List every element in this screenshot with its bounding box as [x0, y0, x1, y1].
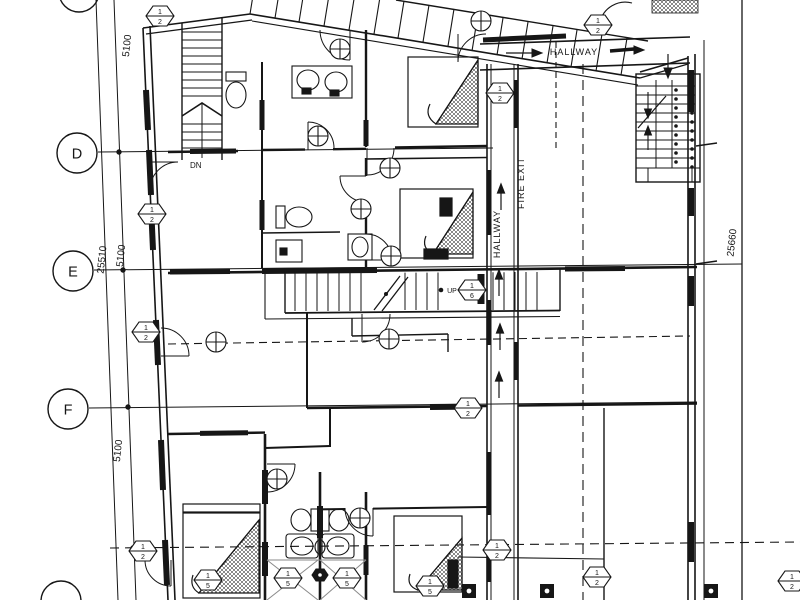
svg-text:1: 1 [596, 18, 600, 25]
window-tag: 12 [584, 15, 612, 35]
bed-mid-right [400, 189, 473, 259]
dimension-left-bottom: 5100 [112, 439, 125, 463]
grid-bubble-d: D [57, 133, 97, 173]
svg-text:1: 1 [141, 544, 145, 551]
svg-text:5: 5 [345, 581, 349, 588]
dimension-left-mid: 5100 [115, 244, 128, 268]
svg-text:1: 1 [495, 543, 499, 550]
svg-text:5: 5 [286, 581, 290, 588]
left-dimension-lines [96, 0, 136, 600]
svg-text:2: 2 [596, 28, 600, 35]
door-tag [379, 329, 399, 349]
window-tag: 12 [486, 83, 514, 103]
door-tag [330, 39, 350, 59]
stair-down [182, 18, 222, 160]
toilet-top-left [226, 72, 246, 108]
dimension-left-top: 5100 [121, 34, 134, 58]
stair-up-label: UP [447, 288, 457, 295]
sink-mid-bath [348, 234, 372, 260]
window-tag: 12 [778, 571, 800, 591]
svg-text:2: 2 [466, 411, 470, 418]
bed-top-right [408, 57, 478, 127]
svg-text:1: 1 [428, 579, 432, 586]
fixture-symbol [312, 569, 328, 581]
svg-text:D: D [72, 147, 82, 163]
svg-text:1: 1 [158, 9, 162, 16]
svg-text:1: 1 [498, 86, 502, 93]
window-tag: 12 [138, 204, 166, 224]
svg-text:1: 1 [144, 325, 148, 332]
svg-text:2: 2 [790, 584, 794, 591]
svg-text:2: 2 [158, 19, 162, 26]
grid-bubble-c-partial [59, 0, 99, 12]
shower-mid-bath [276, 240, 302, 262]
grid-bubble-f: F [48, 389, 88, 429]
grid-bubble-e: E [53, 251, 93, 291]
door-tag [267, 469, 287, 489]
svg-text:E: E [68, 265, 78, 281]
svg-text:2: 2 [498, 96, 502, 103]
svg-text:2: 2 [150, 217, 154, 224]
svg-text:1: 1 [206, 573, 210, 580]
floor-plan-drawing: 25660 5100 25510 5100 5100 D E F [0, 0, 800, 600]
window-tag: 12 [129, 541, 157, 561]
svg-text:1: 1 [470, 283, 474, 290]
property-lines [696, 0, 742, 600]
svg-text:1: 1 [345, 571, 349, 578]
fire-exit-label: FIRE EXIT [516, 157, 526, 209]
hallway-top-label: HALLWAY [550, 47, 598, 57]
stair-diagonal-run [250, 0, 648, 85]
svg-text:2: 2 [495, 553, 499, 560]
svg-text:1: 1 [286, 571, 290, 578]
svg-text:2: 2 [144, 335, 148, 342]
bed-bottom-left [183, 504, 260, 598]
vanity-sinks-top [292, 66, 352, 98]
toilet-mid-bath [276, 206, 312, 228]
svg-text:F: F [64, 403, 73, 419]
svg-text:1: 1 [595, 570, 599, 577]
door-swings [145, 30, 486, 586]
svg-text:1: 1 [790, 574, 794, 581]
svg-text:2: 2 [595, 580, 599, 587]
floor-plan-canvas: 25660 5100 25510 5100 5100 D E F [0, 0, 800, 600]
interior-walls [168, 30, 697, 600]
stair-down-label: DN [190, 161, 202, 170]
roof-hatch-corner [652, 0, 698, 13]
window-tag: 12 [454, 398, 482, 418]
door-tag [351, 199, 371, 219]
door-tag [471, 11, 491, 31]
window-tag: 15 [274, 568, 302, 588]
svg-text:5: 5 [206, 583, 210, 590]
svg-text:6: 6 [470, 293, 474, 300]
stair-up [265, 268, 560, 319]
svg-text:2: 2 [141, 554, 145, 561]
svg-text:5: 5 [428, 589, 432, 596]
dimension-right-overall: 25660 [726, 228, 740, 257]
door-tag [350, 508, 370, 528]
window-tag: 12 [146, 6, 174, 26]
door-tag [206, 332, 226, 352]
svg-text:1: 1 [150, 207, 154, 214]
door-tag [380, 158, 400, 178]
door-tag [308, 126, 328, 146]
svg-text:1: 1 [466, 401, 470, 408]
hallway-vertical-label: HALLWAY [492, 210, 502, 258]
door-tag [381, 246, 401, 266]
window-tag: 12 [583, 567, 611, 587]
grid-bubble-g-partial [41, 581, 81, 600]
